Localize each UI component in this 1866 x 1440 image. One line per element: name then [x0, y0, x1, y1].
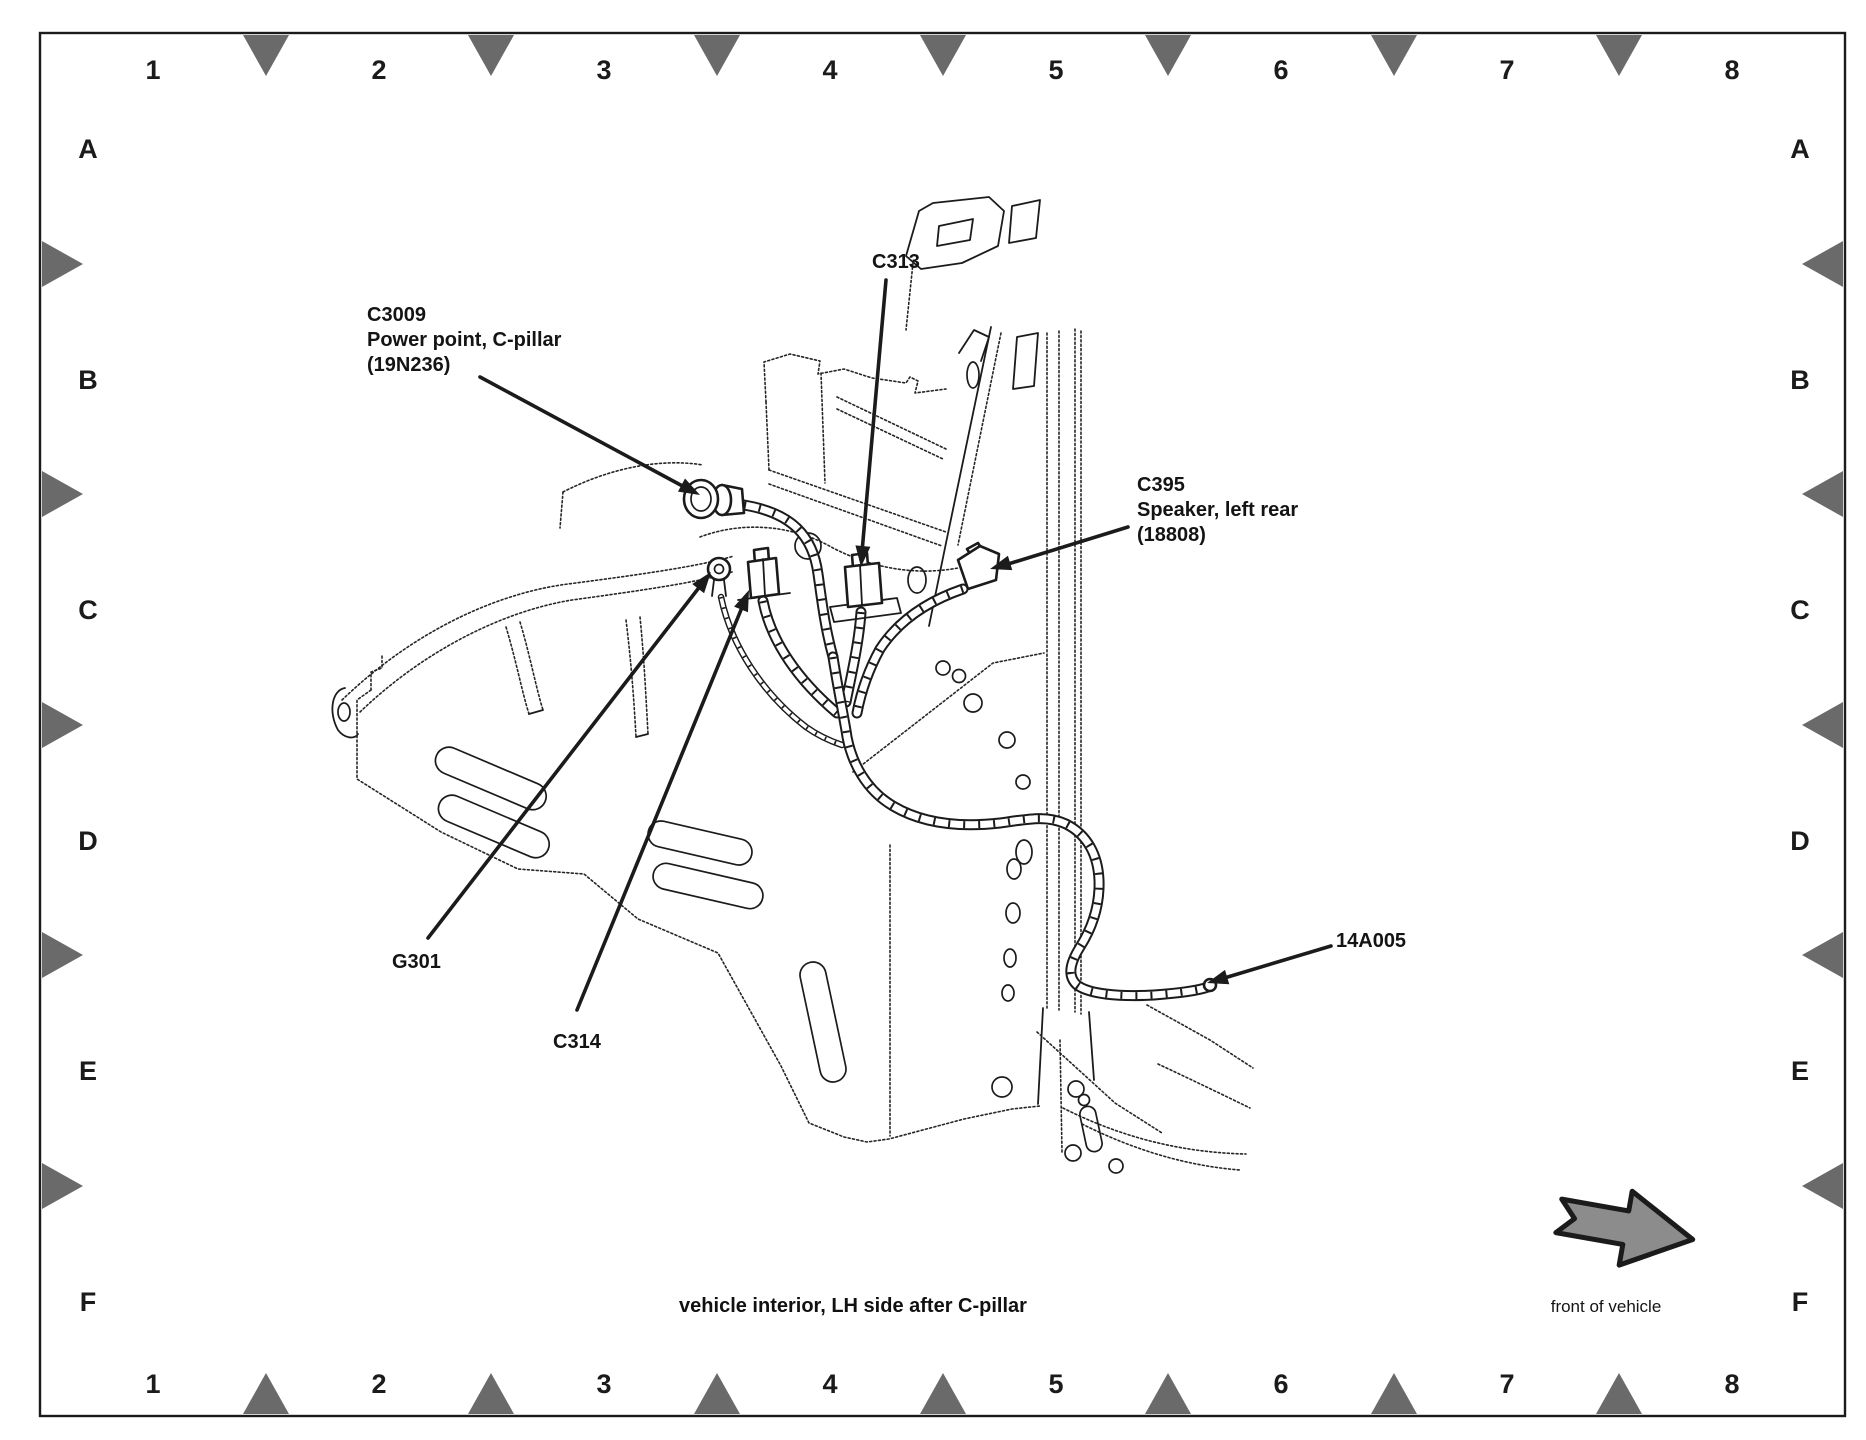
callout-text: 14A005: [1336, 930, 1406, 952]
grid-row-label: F: [80, 1287, 97, 1317]
grid-row-label: C: [78, 595, 98, 625]
callout-text: (19N236): [367, 354, 450, 376]
grid-tick-triangle: [42, 241, 83, 287]
grid-column-label: 1: [145, 55, 160, 85]
connector-c314: [738, 548, 790, 600]
grid-row-label: B: [1790, 365, 1810, 395]
grid-tick-triangle: [42, 1163, 83, 1209]
grid-tick-triangle: [42, 932, 83, 978]
grid-tick-triangle: [694, 35, 740, 76]
callout-c314: C314: [553, 587, 756, 1053]
callout-text: Speaker, left rear: [1137, 499, 1298, 521]
grid-tick-triangle: [468, 35, 514, 76]
grid-tick-triangle: [1802, 471, 1843, 517]
grid-column-label: 8: [1724, 55, 1739, 85]
wiring-diagram-page: 1 2 3 4 5 6 7 8 1 2 3 4 5 6 7 8 A B C D: [0, 0, 1866, 1440]
callout-text: Power point, C-pillar: [367, 329, 562, 351]
grid-row-label: E: [1791, 1056, 1809, 1086]
callout-text: C314: [553, 1031, 602, 1053]
callout-c395: C395 Speaker, left rear (18808): [988, 474, 1299, 576]
grid-tick-triangle: [920, 35, 966, 76]
grid-row-label: F: [1792, 1287, 1809, 1317]
grid-tick-triangle: [1371, 1373, 1417, 1414]
grid-tick-triangle: [468, 1373, 514, 1414]
leader-line: [428, 585, 701, 938]
leader-line: [862, 280, 886, 552]
leader-line: [577, 605, 743, 1010]
callout-text: (18808): [1137, 524, 1206, 546]
grid-tick-triangle: [1145, 35, 1191, 76]
grid-column-label: 5: [1048, 1369, 1063, 1399]
grid-tick-triangle: [1802, 241, 1843, 287]
grid-tick-triangle: [1596, 1373, 1642, 1414]
grid-tick-triangle: [1802, 1163, 1843, 1209]
grid-column-label: 2: [371, 1369, 386, 1399]
callout-c3009: C3009 Power point, C-pillar (19N236): [367, 304, 704, 502]
grid-row-label: C: [1790, 595, 1810, 625]
grid-column-label: 2: [371, 55, 386, 85]
leader-line: [1221, 946, 1331, 979]
grid-tick-triangle: [1802, 932, 1843, 978]
callout-14a005: 14A005: [1205, 930, 1406, 990]
grid-row-label: D: [1790, 826, 1810, 856]
callout-text: C395: [1137, 474, 1185, 496]
wiring-diagram-figure: 1 2 3 4 5 6 7 8 1 2 3 4 5 6 7 8 A B C D: [0, 0, 1866, 1440]
grid-column-label: 6: [1273, 55, 1288, 85]
grid-tick-triangle: [1371, 35, 1417, 76]
connector-g301-ground: [708, 558, 730, 596]
callout-text: C313: [872, 251, 920, 273]
grid-tick-triangle: [920, 1373, 966, 1414]
grid-column-label: 6: [1273, 1369, 1288, 1399]
grid-column-label: 8: [1724, 1369, 1739, 1399]
grid-ruler-top: 1 2 3 4 5 6 7 8: [145, 35, 1739, 85]
grid-column-label: 7: [1499, 1369, 1514, 1399]
connector-c3009-power-point: [684, 480, 744, 518]
grid-column-label: 7: [1499, 55, 1514, 85]
grid-row-label: B: [78, 365, 98, 395]
callout-text: C3009: [367, 304, 426, 326]
grid-tick-triangle: [42, 702, 83, 748]
grid-tick-triangle: [42, 471, 83, 517]
grid-tick-triangle: [1145, 1373, 1191, 1414]
leader-line: [1005, 527, 1128, 565]
grid-column-label: 4: [822, 55, 837, 85]
grid-ruler-left: A B C D E F: [42, 134, 98, 1317]
grid-row-label: E: [79, 1056, 97, 1086]
grid-tick-triangle: [1596, 35, 1642, 76]
connector-c395-speaker: [958, 543, 999, 589]
grid-ruler-right: A B C D E F: [1790, 134, 1843, 1317]
grid-column-label: 3: [596, 1369, 611, 1399]
front-of-vehicle-indicator: front of vehicle: [1551, 1179, 1699, 1316]
grid-row-label: A: [1790, 134, 1810, 164]
grid-column-label: 3: [596, 55, 611, 85]
front-of-vehicle-label: front of vehicle: [1551, 1297, 1662, 1316]
grid-tick-triangle: [243, 1373, 289, 1414]
figure-caption: vehicle interior, LH side after C-pillar: [679, 1295, 1027, 1317]
grid-column-label: 5: [1048, 55, 1063, 85]
grid-column-label: 1: [145, 1369, 160, 1399]
grid-row-label: A: [78, 134, 98, 164]
grid-tick-triangle: [243, 35, 289, 76]
leader-line: [480, 377, 688, 489]
callout-text: G301: [392, 951, 441, 973]
grid-tick-triangle: [694, 1373, 740, 1414]
front-of-vehicle-arrow-icon: [1552, 1179, 1699, 1276]
grid-row-label: D: [78, 826, 98, 856]
grid-column-label: 4: [822, 1369, 837, 1399]
grid-tick-triangle: [1802, 702, 1843, 748]
callout-g301: G301: [392, 567, 717, 973]
grid-ruler-bottom: 1 2 3 4 5 6 7 8: [145, 1369, 1739, 1414]
